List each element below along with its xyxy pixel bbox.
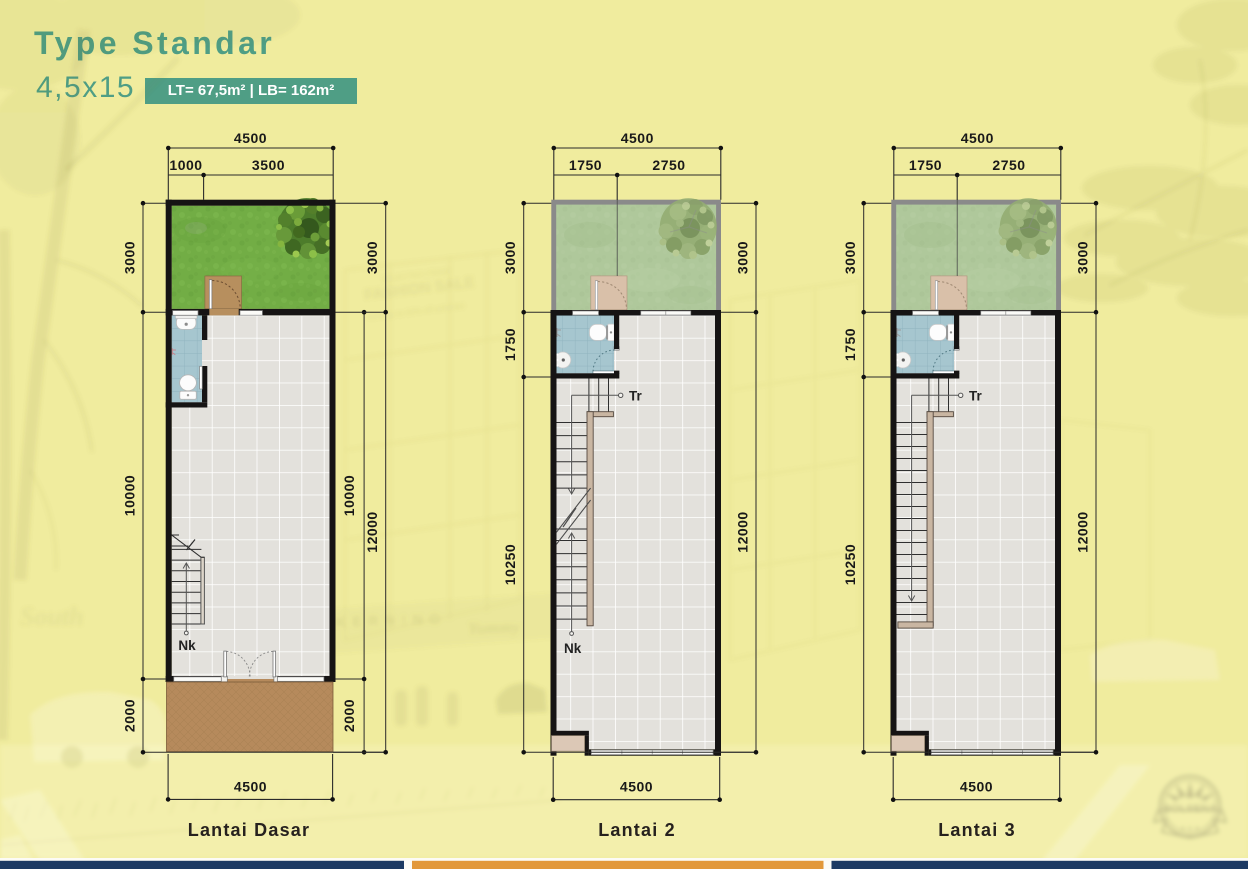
svg-text:1000: 1000 — [169, 157, 202, 173]
svg-text:Lantai Dasar: Lantai Dasar — [188, 820, 310, 840]
svg-text:3500: 3500 — [252, 157, 285, 173]
svg-text:★ ★ ★: ★ ★ ★ — [1180, 825, 1199, 832]
svg-text:3000: 3000 — [364, 241, 380, 274]
svg-text:BOLSENA: BOLSENA — [1163, 803, 1217, 815]
svg-text:Yummy: Yummy — [467, 617, 520, 638]
svg-text:Nk: Nk — [564, 641, 582, 656]
svg-text:10000: 10000 — [341, 475, 357, 516]
svg-text:12000: 12000 — [364, 511, 380, 552]
svg-text:Lantai 3: Lantai 3 — [938, 820, 1016, 840]
svg-text:10000: 10000 — [122, 475, 138, 516]
svg-text:4500: 4500 — [234, 779, 267, 795]
svg-text:Lantai 2: Lantai 2 — [598, 820, 676, 840]
svg-text:2000: 2000 — [341, 699, 357, 732]
svg-text:2000: 2000 — [122, 699, 138, 732]
svg-text:4500: 4500 — [234, 130, 267, 146]
svg-text:South: South — [20, 602, 84, 631]
svg-text:Nk: Nk — [178, 638, 196, 653]
svg-text:3000: 3000 — [122, 241, 138, 274]
